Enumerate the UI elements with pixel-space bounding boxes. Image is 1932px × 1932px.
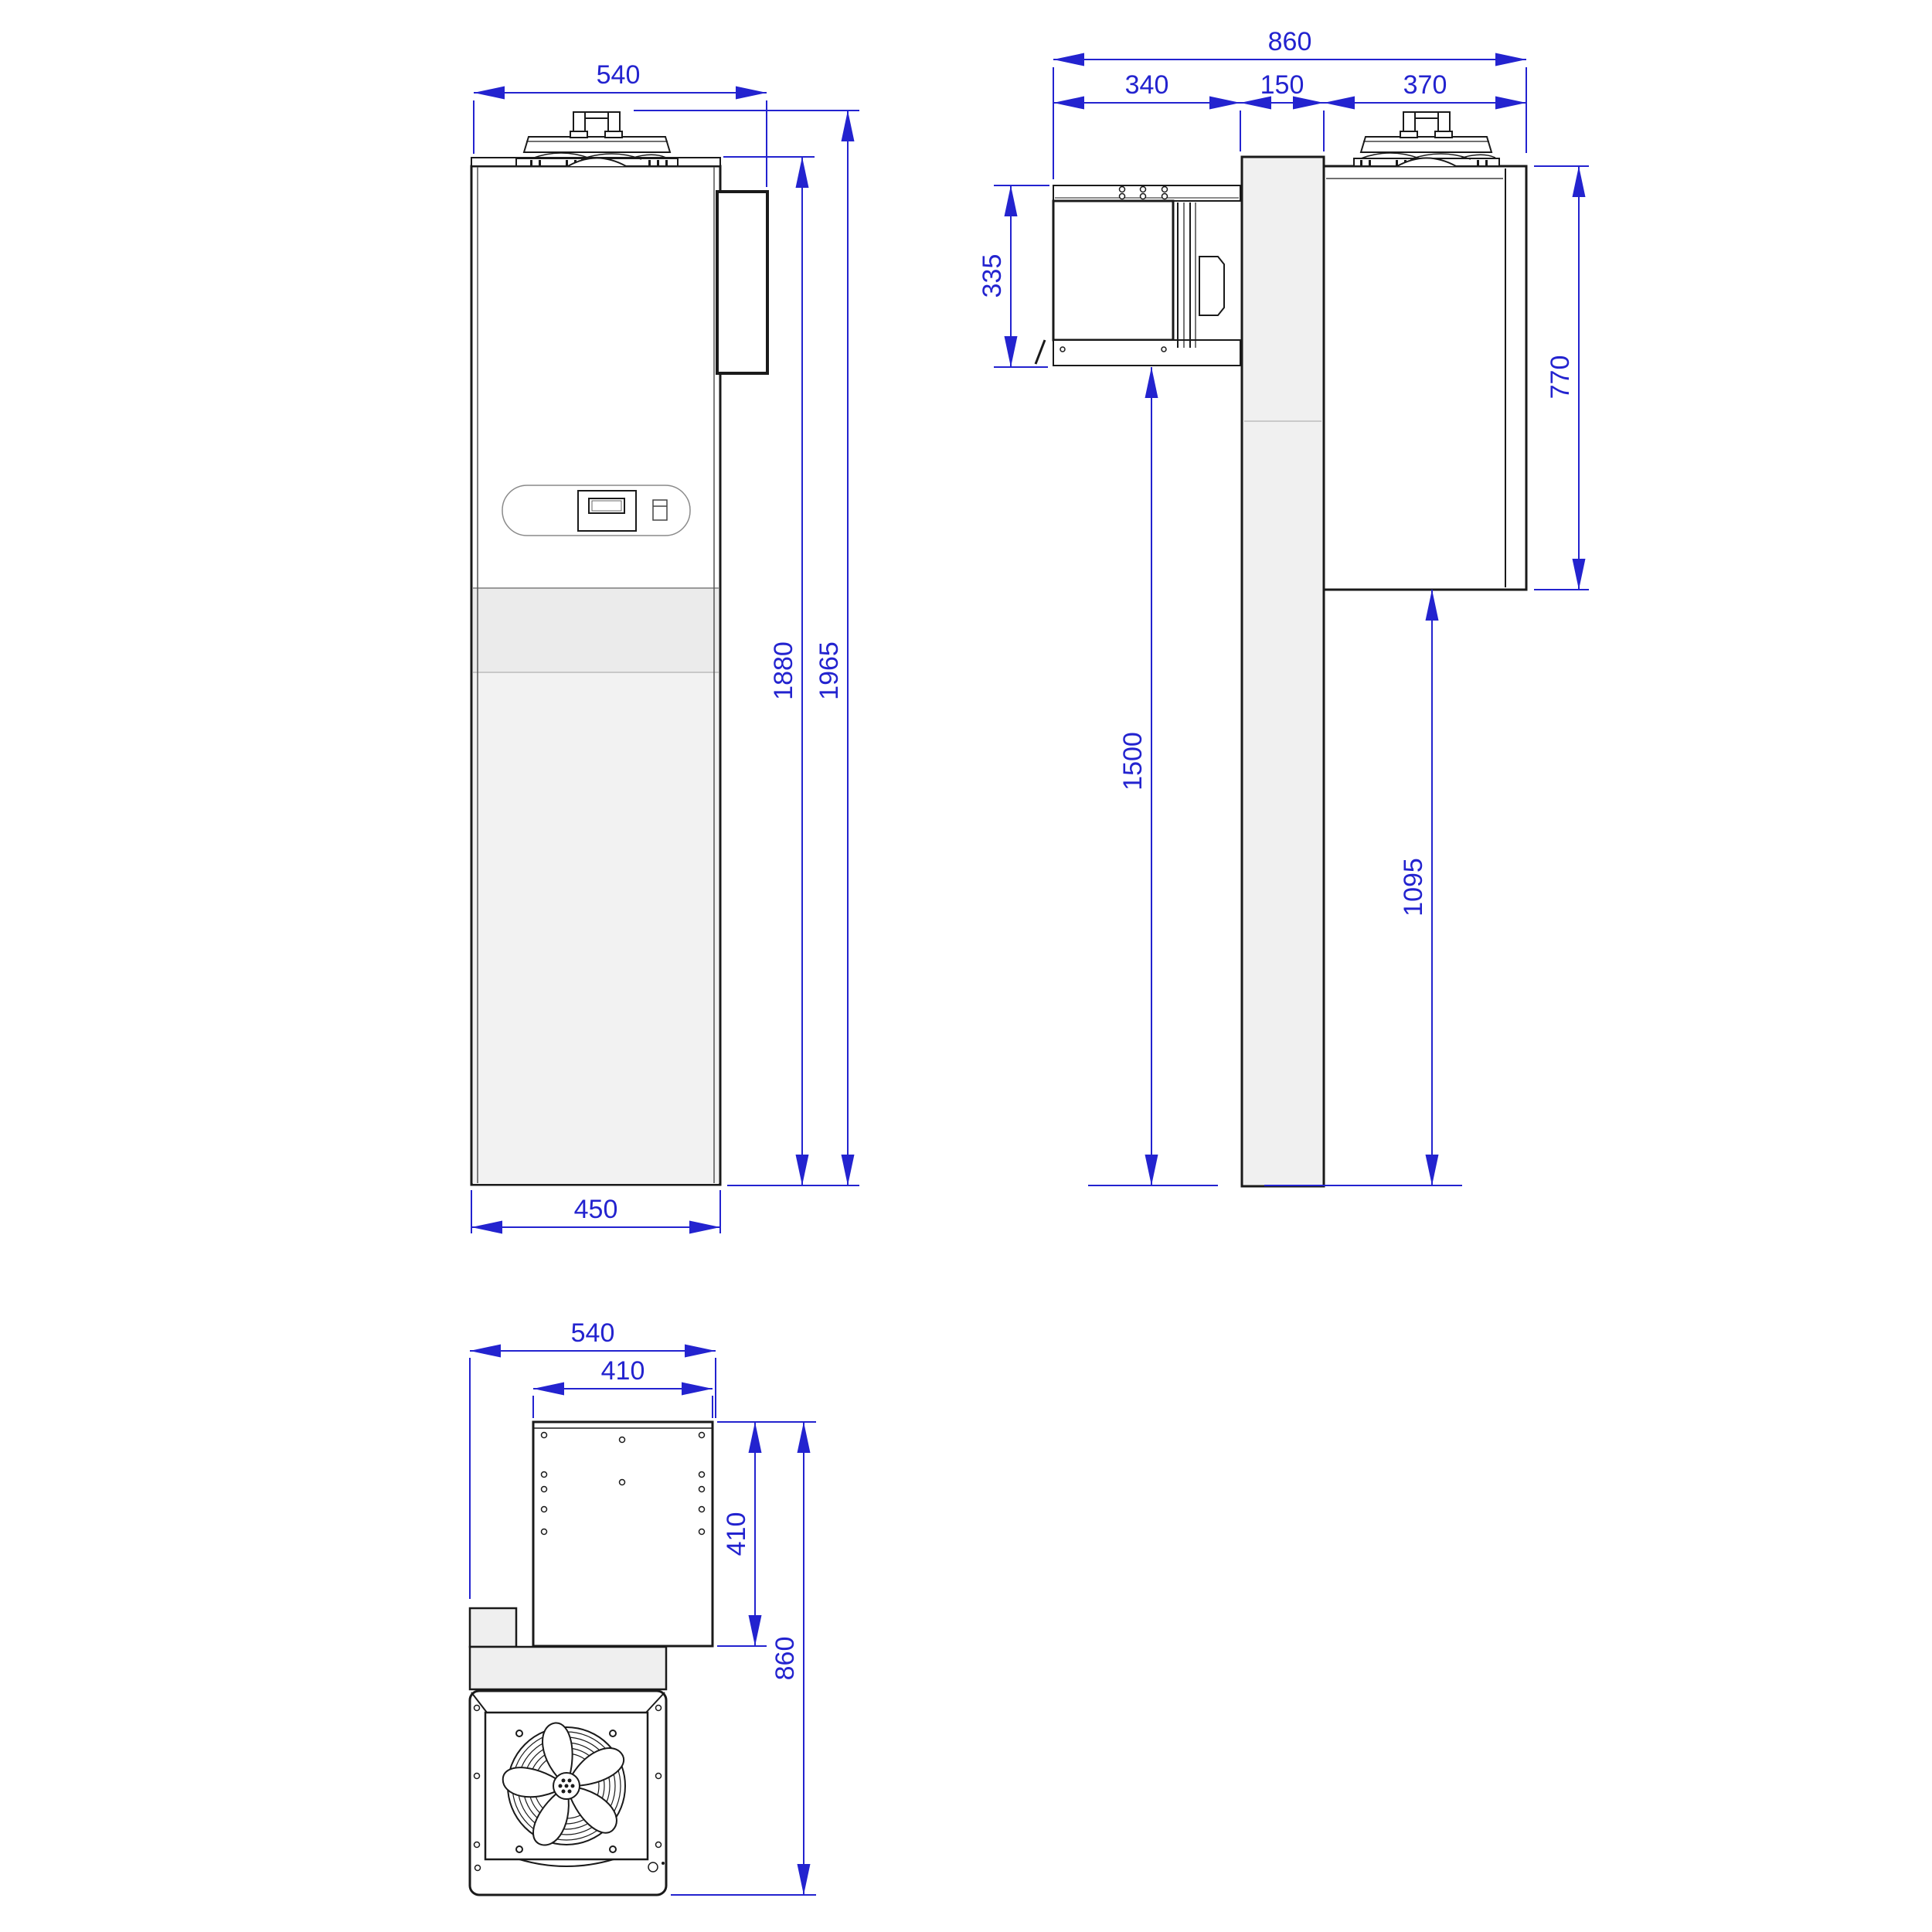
screw-dot bbox=[1120, 194, 1125, 199]
screw-dot bbox=[1162, 187, 1168, 192]
side-fan-bracket-foot bbox=[1400, 131, 1417, 138]
screw-dot bbox=[699, 1472, 705, 1478]
dim-side-evap-340-arrowhead bbox=[1053, 97, 1084, 110]
dim-front-width-540-arrowhead bbox=[736, 87, 767, 100]
dim-front-height-1965-arrowhead bbox=[842, 111, 855, 141]
dim-side-unit-height-770-arrowhead bbox=[1573, 166, 1586, 197]
dim-side-unit-370-arrowhead bbox=[1495, 97, 1526, 110]
fan-hub-hole bbox=[559, 1784, 563, 1788]
screw-dot bbox=[1141, 187, 1146, 192]
screw-dot bbox=[542, 1433, 547, 1438]
side-fan-foot-tick bbox=[1369, 160, 1371, 166]
screw-dot bbox=[699, 1507, 705, 1512]
front-panel-upper-gray bbox=[473, 588, 719, 672]
front-display-screen-inner bbox=[592, 501, 621, 511]
screw-dot bbox=[699, 1487, 705, 1492]
screw-dot bbox=[656, 1774, 662, 1779]
dim-side-total-860-arrowhead bbox=[1053, 53, 1084, 66]
screw-dot bbox=[542, 1487, 547, 1492]
screw-dot bbox=[610, 1846, 616, 1852]
dim-side-clearance-1095-arrowhead bbox=[1426, 1155, 1439, 1185]
front-fan-foot-tick bbox=[665, 160, 668, 166]
dim-side-evap-height-335-arrowhead bbox=[1005, 336, 1018, 367]
drawing-canvas: 5401880196545086034015037033515001095770… bbox=[0, 0, 1932, 1932]
dim-side-evap-340-label: 340 bbox=[1125, 70, 1169, 100]
side-condensing-unit bbox=[1324, 166, 1526, 590]
dim-side-clearance-1500-arrowhead bbox=[1145, 367, 1158, 398]
dim-front-height-1880-arrowhead bbox=[796, 157, 809, 188]
dim-bottom-plate-depth-410-label: 410 bbox=[722, 1512, 751, 1556]
screw-dot bbox=[474, 1842, 480, 1848]
front-fan-bracket-foot bbox=[570, 131, 587, 138]
dim-side-unit-height-770-label: 770 bbox=[1546, 355, 1575, 400]
side-wall bbox=[1242, 157, 1324, 1186]
dim-bottom-depth-860-label: 860 bbox=[770, 1637, 800, 1681]
screw-dot bbox=[662, 1862, 665, 1865]
dim-side-clearance-1500-label: 1500 bbox=[1118, 732, 1148, 791]
dim-bottom-plate-410-arrowhead bbox=[533, 1383, 564, 1396]
front-condenser-duct-box bbox=[717, 192, 767, 373]
screw-dot bbox=[1060, 347, 1065, 352]
screw-dot bbox=[516, 1730, 522, 1736]
dim-front-base-450-arrowhead bbox=[689, 1221, 720, 1234]
screw-dot bbox=[475, 1866, 481, 1871]
screw-dot bbox=[474, 1706, 480, 1711]
dim-front-height-1880-label: 1880 bbox=[769, 641, 798, 700]
dim-bottom-plate-410-label: 410 bbox=[601, 1356, 645, 1386]
dim-front-height-1880-arrowhead bbox=[796, 1155, 809, 1185]
dim-side-wall-150-label: 150 bbox=[1260, 70, 1304, 100]
fan-hub-hole bbox=[565, 1784, 569, 1788]
dim-side-unit-370-label: 370 bbox=[1403, 70, 1447, 100]
front-fan-foot-tick bbox=[566, 160, 568, 166]
screw-dot bbox=[1162, 194, 1168, 199]
screw-dot bbox=[620, 1480, 625, 1485]
screw-dot bbox=[656, 1842, 662, 1848]
screw-dot bbox=[1162, 347, 1166, 352]
side-evaporator-top-plate bbox=[1053, 185, 1240, 201]
screw-dot bbox=[474, 1774, 480, 1779]
screw-dot bbox=[699, 1433, 705, 1438]
dim-bottom-depth-860-arrowhead bbox=[798, 1422, 811, 1453]
screw-dot bbox=[542, 1472, 547, 1478]
screw-dot bbox=[542, 1529, 547, 1535]
screw-dot bbox=[656, 1706, 662, 1711]
front-fan-foot-tick bbox=[648, 160, 651, 166]
dim-side-unit-height-770-arrowhead bbox=[1573, 559, 1586, 590]
dim-bottom-plate-depth-410-arrowhead bbox=[749, 1422, 762, 1453]
side-fan-foot-tick bbox=[1485, 160, 1488, 166]
dim-bottom-width-540-arrowhead bbox=[470, 1345, 501, 1358]
dim-front-base-450-label: 450 bbox=[574, 1195, 618, 1224]
bottom-mounting-plate bbox=[533, 1422, 713, 1646]
bottom-body-step bbox=[470, 1608, 516, 1647]
dim-side-unit-370-arrowhead bbox=[1324, 97, 1355, 110]
dim-side-clearance-1500-arrowhead bbox=[1145, 1155, 1158, 1185]
dim-side-clearance-1095-label: 1095 bbox=[1399, 858, 1428, 917]
screw-dot bbox=[610, 1730, 616, 1736]
dim-bottom-depth-860-arrowhead bbox=[798, 1864, 811, 1895]
screw-dot bbox=[620, 1437, 625, 1443]
side-evaporator-body bbox=[1053, 201, 1173, 340]
dim-front-height-1965-label: 1965 bbox=[815, 641, 844, 700]
dim-bottom-width-540-arrowhead bbox=[685, 1345, 716, 1358]
fan-hub-hole bbox=[568, 1790, 572, 1794]
front-panel-lower-gray bbox=[473, 672, 719, 1184]
dim-side-total-860-arrowhead bbox=[1495, 53, 1526, 66]
fan-hub-hole bbox=[571, 1784, 575, 1788]
screw-dot bbox=[1120, 187, 1125, 192]
fan-hub-hole bbox=[562, 1790, 566, 1794]
front-switch bbox=[653, 500, 667, 520]
dim-bottom-plate-depth-410-arrowhead bbox=[749, 1615, 762, 1646]
front-fan-foot-tick bbox=[530, 160, 532, 166]
screw-dot bbox=[1141, 194, 1146, 199]
drain-hole bbox=[648, 1862, 658, 1872]
dim-bottom-width-540-label: 540 bbox=[571, 1318, 615, 1348]
dim-side-evap-height-335-arrowhead bbox=[1005, 185, 1018, 216]
dim-bottom-plate-410-arrowhead bbox=[682, 1383, 713, 1396]
side-fan-bracket-foot bbox=[1435, 131, 1452, 138]
bottom-body-band bbox=[470, 1647, 666, 1689]
dim-front-height-1965-arrowhead bbox=[842, 1155, 855, 1185]
fan-hub-hole bbox=[568, 1779, 572, 1783]
side-fan-foot-tick bbox=[1360, 160, 1362, 166]
side-fan-motor-bump bbox=[1199, 257, 1224, 315]
dim-side-clearance-1095-arrowhead bbox=[1426, 590, 1439, 621]
dim-front-base-450-arrowhead bbox=[471, 1221, 502, 1234]
dim-side-evap-height-335-label: 335 bbox=[978, 254, 1007, 298]
screw-dot bbox=[516, 1846, 522, 1852]
screw-dot bbox=[542, 1507, 547, 1512]
front-fan-bracket-foot bbox=[605, 131, 622, 138]
front-fan-shroud bbox=[524, 137, 670, 152]
side-fan-shroud bbox=[1361, 137, 1492, 152]
dimension-drawing-page: 5401880196545086034015037033515001095770… bbox=[0, 0, 1932, 1932]
dim-side-evap-340-arrowhead bbox=[1209, 97, 1240, 110]
dim-side-total-860-label: 860 bbox=[1268, 27, 1312, 56]
dim-front-width-540-arrowhead bbox=[474, 87, 505, 100]
side-fan-foot-tick bbox=[1477, 160, 1479, 166]
dim-front-width-540-label: 540 bbox=[597, 60, 641, 90]
front-fan-foot-tick bbox=[539, 160, 541, 166]
fan-hub-hole bbox=[562, 1779, 566, 1783]
side-fan-blade-arc bbox=[1361, 153, 1420, 158]
front-fan-foot-tick bbox=[657, 160, 659, 166]
screw-dot bbox=[699, 1529, 705, 1535]
side-evaporator-tray bbox=[1053, 340, 1240, 366]
side-evaporator-drain bbox=[1036, 340, 1045, 364]
